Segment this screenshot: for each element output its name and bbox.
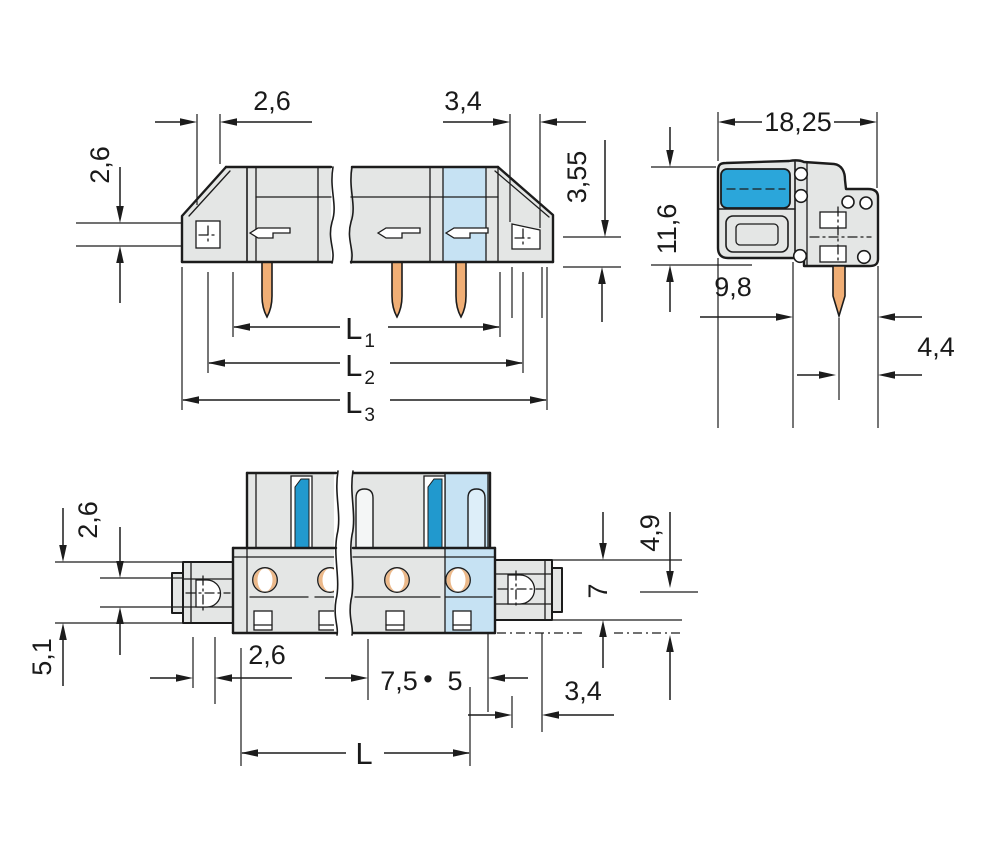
dim-label-bottom-pitch-alt: 5 [447,666,462,696]
dim-label-bottom-total-length: L [355,736,372,771]
side-pin [833,266,845,316]
bottom-dim-offset-upper: 2,6 [73,501,183,655]
bottom-channel-coded [468,489,485,548]
dim-label-bottom-offset-lower: 5,1 [27,638,57,676]
front-view: 2,6 3,4 2,6 [76,86,621,426]
bottom-channel [356,489,373,548]
dim-label-bottom-center-offset: 4,9 [635,514,665,552]
front-break-gap [333,164,350,265]
bottom-view: 2,6 5,1 2,6 7, [27,468,698,771]
front-coded-pole [443,167,486,262]
dim-label-bottom-flange-width: 2,6 [248,640,286,670]
wire-port [253,568,278,593]
wire-port [446,568,471,593]
pin [262,262,272,317]
dim-label-side-height: 11,6 [652,204,682,255]
technical-drawing: 2,6 3,4 2,6 [0,0,1000,862]
bottom-dim-flange-depth: 3,4 [468,633,614,732]
bottom-right-flange [495,560,562,620]
front-dim-height-right: 3,55 [562,140,621,322]
bottom-dim-pitch: 7,5 • 5 [325,633,528,712]
dim-label-pitch-separator: • [423,664,432,694]
front-dim-height-left: 2,6 [76,146,182,303]
dim-label-l3: L3 [345,385,375,426]
dim-label-l2: L2 [345,348,375,389]
dim-label-bottom-flange-height: 7 [583,583,613,598]
dim-label-bottom-flange-depth: 3,4 [564,676,602,706]
dim-label-bottom-offset-upper: 2,6 [73,501,103,539]
side-dim-depth: 9,8 [700,258,793,428]
drawing-canvas: 2,6 3,4 2,6 [0,0,1000,862]
bottom-dim-offset-lower: 5,1 [27,508,183,686]
dim-label-side-width: 18,25 [764,107,832,137]
side-dim-pin-to-edge: 4,4 [797,266,955,428]
dim-label-front-width-right: 3,4 [444,86,482,116]
side-view: 18,25 11,6 9,8 4,4 [651,107,955,428]
dim-label-side-pin-to-edge: 4,4 [917,332,955,362]
pin [456,262,466,317]
dim-label-front-height-left: 2,6 [85,146,115,184]
dim-label-front-height-right: 3,55 [562,151,592,204]
dim-label-front-width-left: 2,6 [253,86,291,116]
front-left-flange-hole [196,221,220,248]
dim-label-side-depth: 9,8 [714,272,752,302]
dim-label-bottom-pitch: 7,5 [380,666,418,696]
pin [392,262,402,317]
bottom-dim-flange-width: 2,6 [150,637,292,704]
bottom-left-flange [172,562,233,623]
front-pins [262,262,466,317]
dim-label-l1: L1 [345,311,375,352]
wire-port [385,568,410,593]
